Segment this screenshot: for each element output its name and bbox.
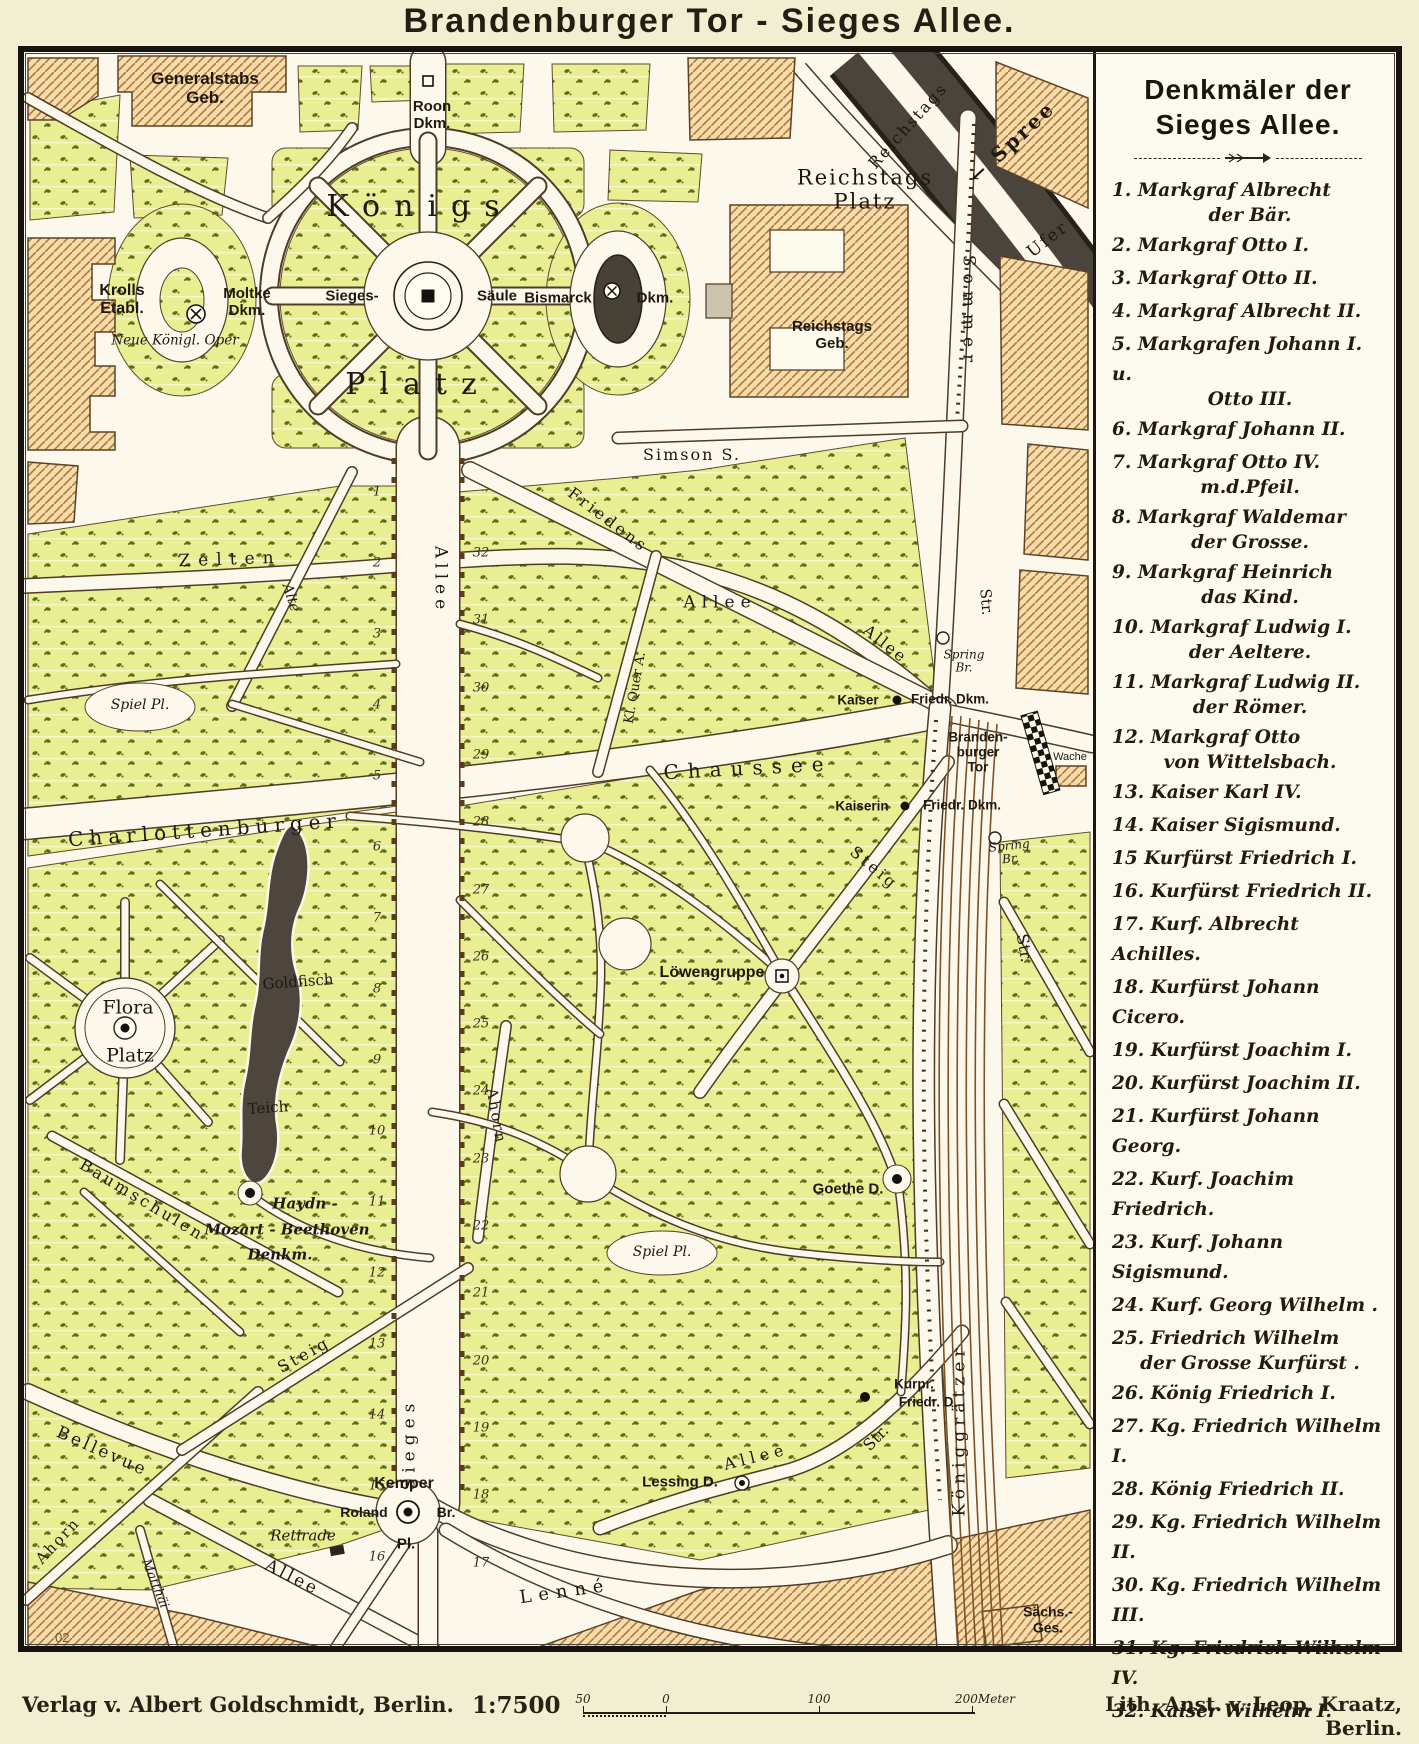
siegessaeule-monument bbox=[422, 290, 435, 303]
legend-item: 3. Markgraf Otto II. bbox=[1112, 264, 1388, 294]
basin-north bbox=[561, 814, 609, 862]
wache-building bbox=[1056, 766, 1086, 786]
legend-item: 22. Kurf. Joachim Friedrich. bbox=[1112, 1165, 1388, 1225]
scale-tick-label: 100 bbox=[808, 1692, 831, 1706]
legend-item: 19. Kurfürst Joachim I. bbox=[1112, 1036, 1388, 1066]
legend-item: 1. Markgraf Albrechtder Bär. bbox=[1112, 176, 1388, 228]
park-patch bbox=[552, 64, 650, 132]
bismarck-monument-mound bbox=[594, 255, 642, 343]
scale-label: 1:7500 bbox=[472, 1692, 561, 1719]
legend-item: 10. Markgraf Ludwig I.der Aeltere. bbox=[1112, 613, 1388, 665]
scale-bar: 50 0 100 200Meter bbox=[575, 1694, 1055, 1728]
reichstag-courtyard-s bbox=[770, 328, 844, 370]
spielplatz-2-area bbox=[607, 1231, 717, 1275]
kurprinz-friedrich-denkmal-marker bbox=[860, 1392, 870, 1402]
legend-item: 14. Kaiser Sigismund. bbox=[1112, 811, 1388, 841]
legend-item: 26. König Friedrich I. bbox=[1112, 1379, 1388, 1409]
legend-item: 28. König Friedrich II. bbox=[1112, 1475, 1388, 1505]
building-east-4 bbox=[1016, 570, 1088, 694]
legend-item: 4. Markgraf Albrecht II. bbox=[1112, 297, 1388, 327]
park-patch bbox=[608, 150, 702, 202]
legend-list: 1. Markgraf Albrechtder Bär.2. Markgraf … bbox=[1108, 176, 1388, 1727]
springbrunnen-1-marker bbox=[937, 632, 949, 644]
floraplatz-center-dot bbox=[121, 1024, 130, 1033]
haydn-denkmal-marker bbox=[245, 1188, 255, 1198]
springbrunnen-2-marker bbox=[989, 832, 1001, 844]
legend-item: 32. Kaiser Wilhelm I. bbox=[1112, 1697, 1388, 1727]
legend-item: 21. Kurfürst Johann Georg. bbox=[1112, 1102, 1388, 1162]
legend-item: 7. Markgraf Otto IV.m.d.Pfeil. bbox=[1112, 448, 1388, 500]
scale-tick bbox=[666, 1706, 667, 1713]
legend-item: 30. Kg. Friedrich Wilhelm III. bbox=[1112, 1571, 1388, 1631]
building-left-small bbox=[28, 462, 78, 524]
kaiserin-friedrich-dkm-marker bbox=[901, 802, 910, 811]
reichstag-courtyard-n bbox=[770, 230, 844, 272]
legend-item: 9. Markgraf Heinrichdas Kind. bbox=[1112, 558, 1388, 610]
page-title: Brandenburger Tor - Sieges Allee. bbox=[0, 2, 1419, 41]
reichstag-portico bbox=[706, 284, 732, 318]
legend-item: 24. Kurf. Georg Wilhelm . bbox=[1112, 1291, 1388, 1321]
legend-item: 17. Kurf. Albrecht Achilles. bbox=[1112, 910, 1388, 970]
legend-panel: Denkmäler der Sieges Allee. 1. Markgraf … bbox=[1093, 52, 1396, 1646]
legend-item: 27. Kg. Friedrich Wilhelm I. bbox=[1112, 1412, 1388, 1472]
legend-item: 16. Kurfürst Friedrich II. bbox=[1112, 877, 1388, 907]
legend-item: 8. Markgraf Waldemarder Grosse. bbox=[1112, 503, 1388, 555]
scale-bar-subdivision bbox=[583, 1715, 666, 1717]
scale-bar-line bbox=[583, 1712, 975, 1714]
kaiser-friedrich-dkm-marker bbox=[893, 696, 902, 705]
scale-tick-label: 50 bbox=[575, 1692, 590, 1706]
legend-item: 13. Kaiser Karl IV. bbox=[1112, 778, 1388, 808]
loewengruppe-dot bbox=[780, 974, 785, 979]
legend-item: 11. Markgraf Ludwig II.der Römer. bbox=[1112, 668, 1388, 720]
park-patch bbox=[444, 64, 524, 134]
legend-item: 12. Markgraf Ottovon Wittelsbach. bbox=[1112, 723, 1388, 775]
legend-item: 6. Markgraf Johann II. bbox=[1112, 415, 1388, 445]
legend-item: 29. Kg. Friedrich Wilhelm II. bbox=[1112, 1508, 1388, 1568]
scale-tick bbox=[819, 1706, 820, 1713]
building-east-2 bbox=[1000, 256, 1088, 430]
scale-tick bbox=[972, 1706, 973, 1713]
legend-item: 20. Kurfürst Joachim II. bbox=[1112, 1069, 1388, 1099]
legend-item: 2. Markgraf Otto I. bbox=[1112, 231, 1388, 261]
map-plate: Brandenburger Tor - Sieges Allee. bbox=[0, 0, 1419, 1744]
legend-item: 23. Kurf. Johann Sigismund. bbox=[1112, 1228, 1388, 1288]
lessing-denkmal-marker bbox=[739, 1480, 745, 1486]
building-east-3 bbox=[1024, 444, 1088, 560]
legend-divider bbox=[1134, 152, 1362, 164]
scale-tick-label: 200Meter bbox=[955, 1692, 1015, 1706]
basin-south bbox=[560, 1146, 616, 1202]
basin-middle bbox=[599, 918, 651, 970]
spielplatz-1-area bbox=[85, 683, 195, 731]
legend-item: 15 Kurfürst Friedrich I. bbox=[1112, 844, 1388, 874]
legend-item: 18. Kurfürst Johann Cicero. bbox=[1112, 973, 1388, 1033]
plate-number: 02 bbox=[55, 1630, 69, 1645]
building-top-center bbox=[688, 58, 795, 140]
scale-tick-label: 0 bbox=[662, 1692, 670, 1706]
rolandbrunnen-marker bbox=[404, 1508, 413, 1517]
legend-item: 25. Friedrich Wilhelmder Grosse Kurfürst… bbox=[1112, 1324, 1388, 1376]
roon-dkm-marker bbox=[423, 76, 433, 86]
legend-item: 31. Kg. Friedrich Wilhelm IV. bbox=[1112, 1634, 1388, 1694]
legend-title: Denkmäler der Sieges Allee. bbox=[1108, 72, 1388, 142]
legend-item: 5. Markgrafen Johann I. u.Otto III. bbox=[1112, 330, 1388, 412]
publisher-imprint: Verlag v. Albert Goldschmidt, Berlin. bbox=[22, 1692, 454, 1717]
goethe-denkmal-marker bbox=[892, 1174, 902, 1184]
arrow-ornament-icon bbox=[1225, 152, 1271, 164]
scale-tick bbox=[583, 1706, 584, 1713]
